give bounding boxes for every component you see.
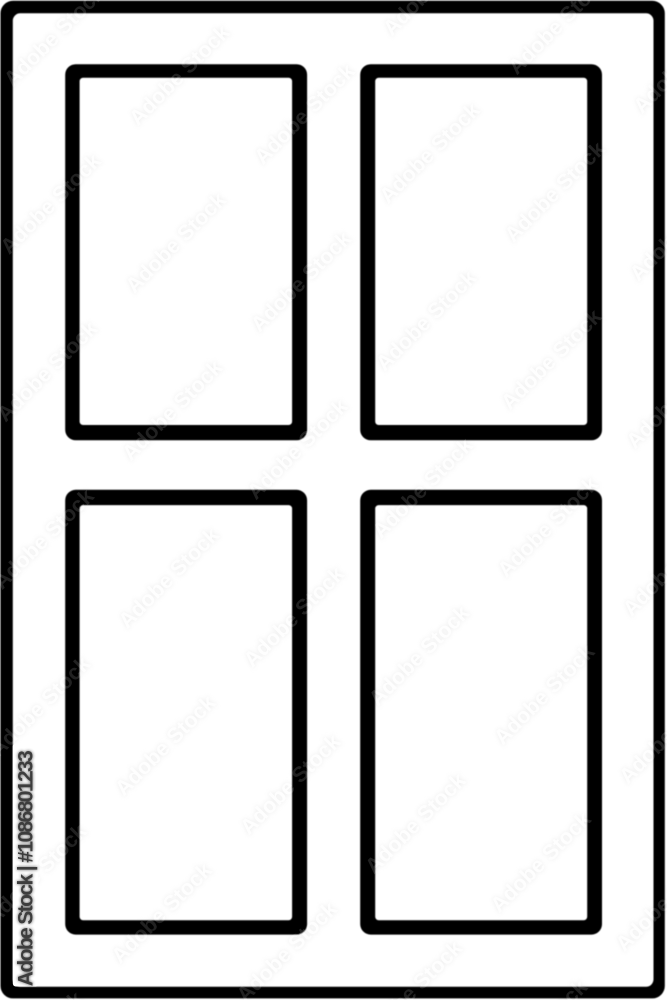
svg-text:Adobe Stock | #1086801233: Adobe Stock | #1086801233 xyxy=(15,751,38,986)
